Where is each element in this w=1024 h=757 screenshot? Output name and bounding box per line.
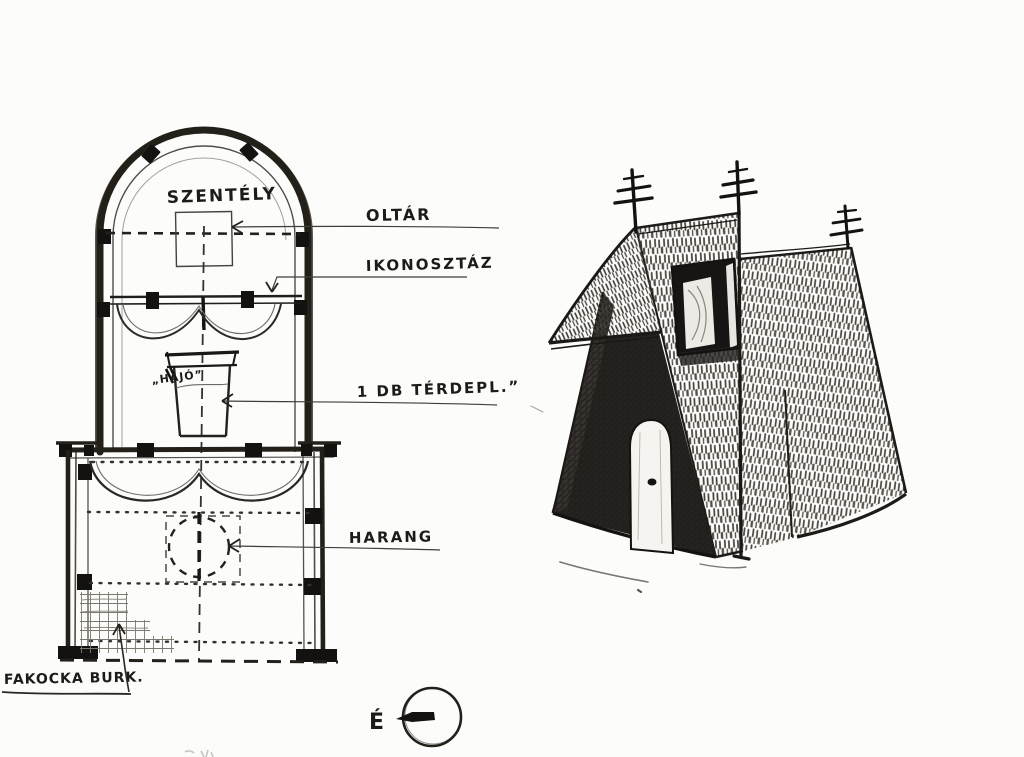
compass-needle	[396, 712, 435, 722]
floor-plan: SZENTÉLY „HAJÓ” OLTÁR IKONOSZTÁZ 1 DB TÉ…	[2, 128, 521, 694]
north-letter: É	[369, 709, 384, 735]
sanctuary-label: SZENTÉLY	[166, 182, 277, 208]
ridge-cross-middle	[721, 162, 756, 214]
faint-pencil-marks	[185, 750, 213, 757]
plan-centerline	[199, 226, 204, 660]
perspective-sketch	[531, 162, 906, 592]
gable-window	[672, 259, 742, 366]
apse-scallop-arcs	[117, 304, 281, 339]
entrance-door	[630, 420, 673, 553]
rear-roof-plane	[740, 244, 906, 552]
kneeler-label: 1 DB TÉRDEPL.”	[356, 376, 520, 401]
bell-label: HARANG	[349, 528, 433, 547]
north-compass: É	[369, 688, 461, 746]
nave-label: „HAJÓ”	[151, 368, 204, 387]
bell-circle	[166, 512, 240, 586]
wood-block-paving-label: FAKOCKA BURK.	[4, 670, 144, 688]
callout-altar: OLTÁR	[232, 205, 499, 233]
sketch-canvas: SZENTÉLY „HAJÓ” OLTÁR IKONOSZTÁZ 1 DB TÉ…	[0, 0, 1024, 757]
wood-block-paving-grid	[80, 592, 174, 653]
callout-kneeler: 1 DB TÉRDEPL.”	[222, 376, 521, 407]
nave-scallop-arcs	[90, 461, 308, 501]
sketch-paper: SZENTÉLY „HAJÓ” OLTÁR IKONOSZTÁZ 1 DB TÉ…	[0, 0, 1024, 757]
altar-label: OLTÁR	[366, 205, 432, 225]
callout-iconostasis: IKONOSZTÁZ	[266, 253, 494, 292]
ridge-cross-front	[615, 170, 652, 232]
callout-bell: HARANG	[229, 528, 440, 552]
iconostasis-label: IKONOSZTÁZ	[366, 253, 494, 275]
altar-square	[106, 212, 300, 267]
ridge-cross-back	[831, 206, 862, 248]
